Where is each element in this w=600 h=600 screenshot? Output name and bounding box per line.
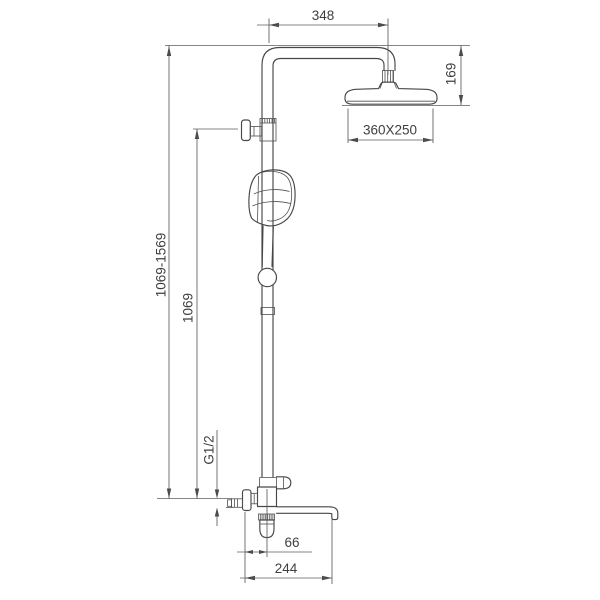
valve-sleeve	[260, 478, 277, 488]
label-arm-reach: 348	[312, 8, 335, 23]
label-spout-reach: 244	[275, 561, 298, 576]
label-wall-offset: 66	[284, 535, 299, 550]
spout	[277, 507, 338, 520]
slider-knob	[258, 268, 276, 286]
dimension-labels: 348 169 360X250 1069-1569 1069 G1/2 66 2…	[154, 8, 459, 576]
lever-handle	[259, 514, 275, 538]
label-inlet-thread: G1/2	[202, 435, 217, 464]
upper-wall-bracket	[242, 119, 277, 142]
hand-shower	[249, 170, 295, 287]
label-height-range: 1069-1569	[154, 233, 169, 298]
overhead-shower-head	[345, 82, 437, 104]
riser-pipe-and-arm-inner	[273, 59, 384, 478]
label-riser-height: 1069	[181, 293, 196, 323]
hand-shower-handle	[262, 226, 273, 267]
shower-column-technical-drawing: 348 169 360X250 1069-1569 1069 G1/2 66 2…	[0, 0, 600, 600]
mixer-valve	[228, 477, 338, 557]
dimension-lines	[157, 19, 470, 585]
label-head-drop: 169	[444, 63, 459, 86]
riser-pipe-and-arm-outer	[262, 48, 395, 478]
holder-clamp	[258, 176, 259, 222]
dim-arm-reach-348	[257, 19, 388, 76]
inlet-nipple	[228, 499, 243, 508]
wall-flange	[243, 490, 252, 511]
bracket-knurl	[260, 119, 276, 124]
dim-inlet-thread-g12	[215, 430, 233, 526]
label-head-size: 360X250	[363, 123, 417, 138]
